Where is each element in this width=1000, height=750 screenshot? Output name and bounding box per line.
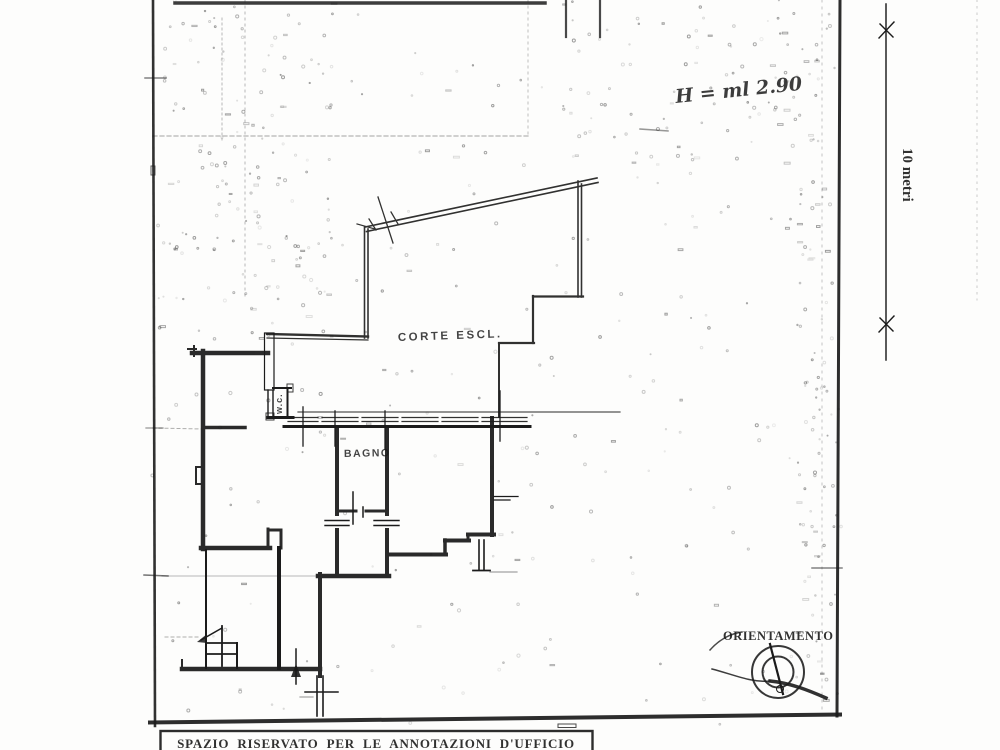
- plan-line: [328, 158, 330, 160]
- plan-line: [157, 224, 160, 227]
- plan-line: [225, 183, 227, 185]
- plan-line: [794, 118, 796, 120]
- plan-line: [810, 249, 811, 250]
- plan-line: [666, 127, 668, 129]
- plan-line: [611, 441, 615, 443]
- plan-line: [804, 420, 807, 423]
- plan-line: [784, 162, 790, 164]
- plan-line: [599, 38, 601, 40]
- plan-line: [249, 173, 250, 174]
- plan-line: [768, 102, 769, 103]
- plan-line: [665, 429, 666, 430]
- plan-line: [800, 188, 802, 190]
- plan-line: [473, 193, 475, 195]
- plan-line: [702, 698, 705, 701]
- plan-line: [498, 481, 500, 483]
- plan-line: [462, 692, 464, 694]
- plan-line: [587, 92, 590, 95]
- plan-line: [252, 124, 254, 126]
- plan-line: [263, 69, 266, 72]
- plan-line: [521, 447, 524, 450]
- plan-line: [550, 356, 553, 359]
- plan-line: [799, 282, 801, 284]
- plan-line: [640, 129, 668, 131]
- plan-line: [193, 236, 196, 239]
- plan-line: [276, 286, 279, 289]
- plan-line: [361, 94, 362, 95]
- plan-line: [210, 163, 213, 166]
- plan-line: [411, 95, 413, 97]
- plan-line: [818, 452, 820, 454]
- plan-line: [589, 510, 592, 513]
- plan-line: [809, 73, 811, 75]
- plan-line: [606, 29, 608, 31]
- plan-line: [272, 152, 273, 153]
- plan-line: [660, 663, 662, 665]
- plan-line: [556, 265, 558, 267]
- plan-line: [578, 50, 580, 52]
- plan-line: [280, 74, 281, 75]
- plan-line: [216, 186, 218, 188]
- plan-line: [499, 534, 503, 536]
- plan-line: [218, 203, 220, 205]
- plan-line: [498, 668, 501, 671]
- plan-line: [372, 566, 373, 567]
- plan-line: [572, 156, 574, 158]
- plan-line: [755, 424, 758, 427]
- plan-line: [221, 58, 224, 61]
- plan-line: [570, 88, 572, 90]
- plan-line: [637, 177, 638, 178]
- plan-line: [182, 232, 183, 233]
- floor-plan-drawing: 10 metri H = ml 2.90 w.c.: [0, 0, 1000, 750]
- plan-line: [291, 200, 294, 203]
- plan-line: [753, 43, 756, 46]
- plan-line: [257, 501, 259, 503]
- plan-line: [551, 506, 554, 509]
- plan-line: [267, 286, 270, 287]
- plan-line: [676, 154, 679, 157]
- plan-line: [726, 350, 728, 352]
- plan-line: [584, 132, 587, 135]
- plan-line: [503, 662, 505, 664]
- plan-line: [318, 291, 321, 294]
- plan-line: [515, 559, 520, 560]
- plan-line: [215, 164, 218, 167]
- plan-line: [725, 74, 727, 76]
- plan-line: [541, 87, 542, 88]
- plan-line: [797, 502, 802, 503]
- plan-line: [790, 655, 792, 657]
- plan-line: [733, 25, 736, 28]
- plan-line: [787, 44, 789, 46]
- plan-line: [741, 65, 744, 68]
- plan-line: [294, 154, 296, 156]
- plan-line: [254, 184, 259, 186]
- plan-line: [470, 563, 472, 565]
- plan-line: [814, 474, 816, 476]
- plan-line: [163, 242, 165, 244]
- plan-line: [770, 65, 775, 67]
- plan-line: [549, 638, 551, 640]
- plan-line: [691, 154, 692, 155]
- plan-line: [572, 39, 575, 42]
- plan-line: [367, 423, 371, 425]
- plan-line: [829, 203, 832, 206]
- plan-line: [297, 245, 300, 248]
- plan-line: [691, 317, 692, 318]
- plan-line: [250, 603, 251, 604]
- plan-line: [728, 486, 731, 489]
- plan-line: [285, 447, 288, 450]
- plan-line: [198, 330, 199, 331]
- plan-line: [828, 25, 831, 28]
- height-annotation: H = ml 2.90: [640, 73, 803, 131]
- plan-line: [323, 255, 326, 258]
- plan-line: [197, 247, 199, 249]
- plan-line: [631, 572, 634, 575]
- plan-line: [173, 0, 176, 2]
- plan-line: [814, 531, 818, 532]
- plan-line: [308, 247, 310, 249]
- plan-line: [550, 665, 555, 666]
- plan-line: [684, 63, 687, 66]
- plan-line: [259, 337, 264, 339]
- plan-line: [592, 559, 595, 562]
- plan-line: [825, 250, 830, 252]
- plan-line: [250, 192, 252, 194]
- plan-line: [746, 303, 747, 304]
- plan-line: [237, 208, 239, 210]
- plan-line: [213, 47, 214, 48]
- plan-line: [204, 10, 205, 11]
- plan-line: [272, 260, 275, 262]
- plan-line: [458, 464, 463, 466]
- plan-line: [779, 33, 780, 34]
- plan-line: [700, 346, 703, 349]
- plan-line: [381, 290, 383, 292]
- plan-line: [678, 249, 683, 251]
- plan-line: [708, 327, 711, 330]
- plan-line: [732, 72, 734, 74]
- plan-line: [830, 337, 833, 340]
- stairwell: [197, 548, 279, 668]
- plan-line: [329, 107, 331, 109]
- plan-line: [365, 178, 597, 227]
- plan-line: [814, 352, 815, 353]
- plan-line: [271, 704, 273, 706]
- plan-line: [246, 220, 247, 221]
- plan-line: [241, 28, 243, 30]
- plan-line: [815, 43, 818, 46]
- plan-line: [223, 299, 226, 302]
- plan-line: [826, 28, 827, 29]
- plan-line: [565, 292, 567, 294]
- plan-line: [456, 70, 458, 72]
- plan-line: [318, 243, 320, 245]
- plan-line: [664, 451, 665, 452]
- plan-line: [183, 298, 184, 299]
- doors-and-ticks: [291, 492, 518, 716]
- plan-line: [525, 446, 528, 449]
- plan-line: [587, 239, 589, 241]
- courtyard-label: CORTE ESCL.: [398, 328, 503, 344]
- plan-line: [426, 412, 428, 414]
- courtyard-outline: [267, 178, 598, 417]
- plan-line: [214, 26, 216, 28]
- plan-line: [815, 94, 817, 96]
- plan-line: [324, 434, 326, 436]
- plan-line: [831, 414, 832, 415]
- plan-line: [168, 418, 170, 420]
- plan-line: [822, 188, 826, 190]
- plan-line: [650, 354, 651, 355]
- plan-line: [163, 296, 164, 297]
- plan-line: [205, 535, 207, 537]
- plan-line: [407, 270, 412, 271]
- plan-line: [462, 145, 464, 147]
- plan-line: [811, 207, 814, 210]
- plan-line: [391, 212, 398, 224]
- plan-line: [802, 524, 804, 526]
- plan-line: [572, 20, 573, 21]
- plan-line: [291, 343, 293, 345]
- plan-line: [708, 35, 712, 36]
- plan-line: [303, 275, 306, 278]
- plan-line: [169, 243, 170, 244]
- plan-line: [578, 135, 581, 138]
- plan-line: [784, 71, 787, 74]
- plan-line: [600, 103, 602, 105]
- plan-line: [419, 151, 421, 153]
- plan-line: [278, 178, 280, 179]
- plan-line: [767, 20, 768, 21]
- plan-line: [701, 122, 703, 124]
- plan-line: [233, 146, 235, 148]
- plan-line: [619, 320, 620, 321]
- plan-line: [271, 44, 273, 46]
- plan-line: [173, 63, 176, 64]
- plan-line: [751, 141, 752, 142]
- plan-line: [319, 431, 321, 433]
- plan-line: [229, 193, 232, 194]
- plan-line: [646, 700, 648, 702]
- scan-noise: [151, 0, 842, 725]
- plan-line: [785, 227, 789, 229]
- plan-line: [665, 313, 667, 315]
- plan-line: [468, 184, 470, 186]
- plan-line: [223, 51, 224, 52]
- plan-line: [342, 244, 344, 246]
- plan-line: [824, 386, 826, 388]
- plan-line: [257, 222, 259, 224]
- plan-line: [153, 428, 203, 429]
- plan-line: [751, 692, 753, 694]
- plan-line: [749, 116, 751, 118]
- plan-line: [805, 385, 806, 386]
- plan-line: [650, 155, 653, 158]
- plan-line: [181, 252, 184, 255]
- plan-line: [383, 369, 386, 370]
- plan-line: [254, 211, 257, 213]
- plan-line: [804, 61, 809, 63]
- plan-line: [209, 20, 211, 22]
- plan-line: [276, 183, 279, 186]
- plan-line: [316, 288, 318, 290]
- plan-line: [265, 333, 275, 390]
- plan-line: [714, 604, 718, 606]
- plan-line: [331, 237, 333, 239]
- plan-line: [544, 647, 547, 650]
- plan-line: [186, 234, 187, 235]
- plan-line: [694, 227, 697, 228]
- plan-line: [263, 127, 265, 129]
- plan-line: [268, 55, 269, 56]
- plan-line: [811, 428, 814, 431]
- plan-line: [526, 308, 528, 310]
- plan-line: [791, 144, 794, 147]
- plan-line: [390, 247, 392, 249]
- plan-line: [531, 557, 534, 560]
- plan-line: [656, 127, 659, 130]
- plan-line: [396, 373, 398, 375]
- plan-line: [629, 44, 630, 45]
- plan-line: [201, 166, 204, 169]
- plan-line: [833, 526, 835, 528]
- plan-line: [306, 159, 308, 161]
- frame-left-border: [153, 0, 155, 726]
- plan-line: [302, 65, 305, 68]
- plan-line: [720, 211, 722, 213]
- hatched-party-wall: [265, 333, 275, 390]
- plan-line: [800, 203, 801, 204]
- plan-line: [608, 88, 610, 90]
- plan-line: [229, 201, 231, 203]
- plan-line: [695, 62, 698, 63]
- plan-line: [405, 254, 408, 257]
- plan-line: [241, 36, 244, 39]
- frame-right-border: [837, 0, 840, 716]
- plan-line: [804, 246, 807, 249]
- plan-line: [813, 139, 814, 140]
- plan-line: [589, 130, 591, 132]
- plan-line: [807, 655, 810, 658]
- plan-line: [173, 110, 174, 111]
- plan-line: [163, 80, 166, 83]
- plan-line: [187, 709, 190, 712]
- plan-line: [239, 690, 242, 693]
- plan-line: [327, 198, 328, 199]
- plan-line: [828, 13, 830, 15]
- plan-line: [630, 113, 632, 115]
- plan-line: [239, 689, 241, 690]
- plan-line: [809, 134, 814, 136]
- plan-line: [497, 84, 499, 86]
- plan-line: [680, 399, 682, 401]
- plan-line: [620, 293, 623, 296]
- plan-line: [816, 397, 817, 398]
- plan-line: [827, 435, 828, 436]
- plan-line: [213, 635, 215, 637]
- plan-line: [785, 690, 788, 693]
- plan-line: [272, 322, 274, 324]
- plan-line: [175, 403, 178, 406]
- wc-label: w.c.: [274, 393, 284, 415]
- plan-line: [823, 486, 825, 488]
- plan-line: [605, 471, 607, 473]
- plan-line: [299, 257, 301, 259]
- plan-line: [258, 226, 261, 229]
- plan-line: [747, 102, 749, 104]
- plan-line: [329, 232, 330, 233]
- plan-line: [836, 442, 837, 443]
- plan-line: [268, 334, 270, 336]
- plan-line: [799, 114, 801, 116]
- plan-line: [758, 113, 761, 116]
- plan-line: [811, 359, 813, 361]
- plan-line: [302, 452, 303, 453]
- plan-line: [636, 17, 639, 20]
- plan-line: [284, 34, 288, 35]
- plan-line: [530, 483, 533, 486]
- plan-line: [727, 206, 729, 208]
- plan-line: [802, 49, 803, 50]
- window-mullion-ticks: [303, 391, 500, 449]
- plan-line: [784, 109, 790, 111]
- plan-line: [178, 181, 180, 183]
- plan-line: [453, 248, 455, 250]
- plan-line: [834, 594, 835, 595]
- plan-line: [532, 415, 533, 416]
- plan-line: [760, 38, 763, 41]
- frame-bottom-border: [150, 715, 840, 723]
- plan-line: [689, 172, 691, 174]
- plan-line: [251, 332, 253, 334]
- plan-line: [563, 4, 566, 5]
- plan-line: [495, 222, 498, 225]
- plan-line: [411, 370, 413, 372]
- plan-line: [563, 105, 564, 106]
- plan-line: [636, 593, 638, 595]
- plan-line: [797, 462, 798, 463]
- plan-line: [390, 405, 391, 406]
- scale-bar: 10 metri: [879, 4, 915, 360]
- plan-line: [630, 557, 632, 559]
- survey-cross-line: [378, 197, 393, 243]
- plan-line: [208, 152, 211, 155]
- plan-line: [823, 699, 829, 701]
- plan-line: [679, 431, 681, 433]
- plan-line: [657, 164, 659, 165]
- plan-line: [178, 602, 180, 604]
- plan-line: [392, 645, 395, 648]
- plan-line: [520, 79, 522, 81]
- plan-line: [254, 274, 256, 276]
- office-annotation-label: SPAZIO RISERVATO PER LE ANNOTAZIONI D'UF…: [177, 736, 575, 750]
- corridor-windowed-wall: [284, 391, 620, 449]
- plan-line: [670, 103, 673, 104]
- plan-line: [604, 104, 606, 106]
- plan-line: [758, 439, 761, 442]
- plan-line: [214, 18, 215, 19]
- plan-line: [199, 150, 202, 153]
- plan-line: [327, 219, 329, 221]
- plan-line: [175, 103, 177, 105]
- plan-line: [835, 515, 836, 516]
- plan-line: [233, 292, 235, 294]
- plan-line: [804, 488, 806, 490]
- plan-line: [242, 110, 245, 113]
